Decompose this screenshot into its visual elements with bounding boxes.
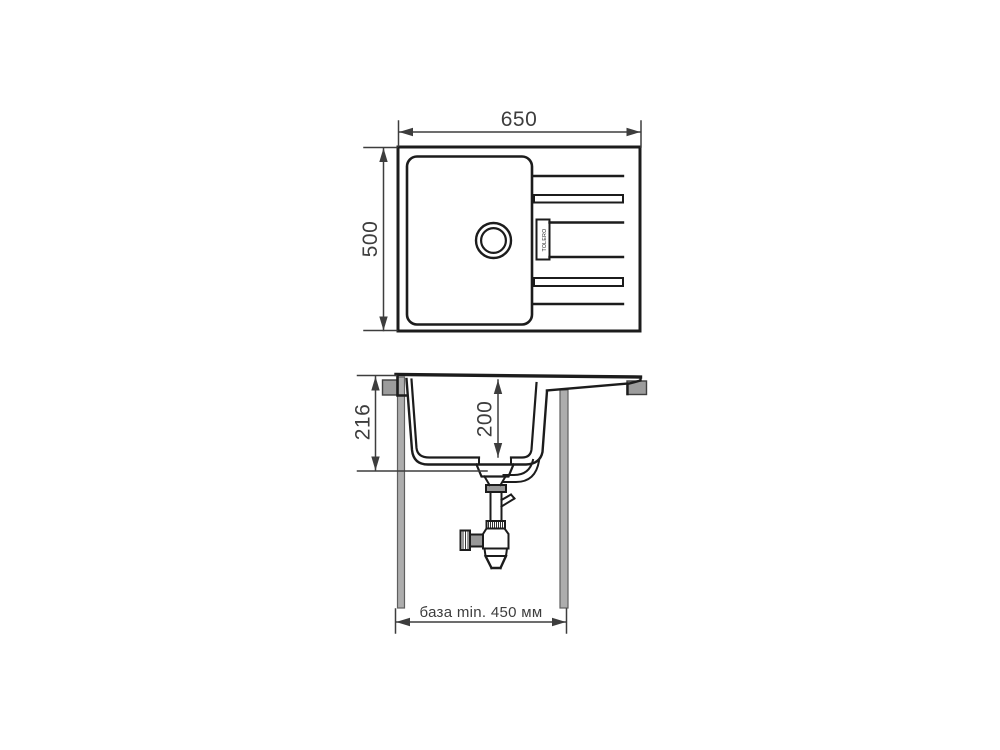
trap-side-outlet — [461, 531, 484, 551]
sink-dimension-drawing: TOLERO 650 500 — [0, 0, 1000, 750]
dim-label-bowl-depth: 200 — [474, 401, 497, 438]
arrow-up-icon — [371, 377, 379, 391]
arrow-up-icon — [494, 380, 502, 394]
arrow-down-icon — [379, 317, 387, 331]
drain-hole-inner — [481, 228, 506, 253]
cabinet-right-panel — [560, 390, 568, 608]
siphon-assembly — [461, 460, 540, 568]
top-view: TOLERO 650 500 — [359, 108, 641, 331]
arrow-down-icon — [494, 443, 502, 457]
dim-label-height: 500 — [359, 221, 382, 258]
side-view: 216 200 база min. 450 мм — [352, 375, 647, 634]
drain-funnel — [485, 477, 506, 486]
threaded-collar-bottom — [487, 521, 506, 529]
arrow-up-icon — [379, 148, 387, 162]
arrow-left-icon — [396, 618, 410, 626]
drainboard-groove-1 — [534, 195, 623, 203]
branch-nozzle — [502, 495, 515, 507]
drainboard-underside — [547, 384, 628, 391]
sink-bowl-outline — [407, 157, 532, 325]
cabinet-left-panel — [398, 377, 405, 608]
arrow-right-icon — [552, 618, 566, 626]
dim-label-width: 650 — [501, 108, 538, 131]
arrow-right-icon — [627, 128, 641, 136]
dimension-base-450: база min. 450 мм — [396, 604, 567, 633]
sink-cross-section — [396, 375, 641, 465]
arrow-down-icon — [371, 457, 379, 471]
dimension-200: 200 — [474, 380, 503, 457]
technical-drawing-canvas: TOLERO 650 500 — [0, 0, 1000, 750]
dimension-650: 650 — [399, 108, 642, 147]
rim-top-surface — [396, 375, 641, 378]
trap-cup — [483, 549, 509, 569]
dim-label-total-depth: 216 — [352, 404, 375, 441]
trap-body — [483, 529, 509, 549]
arrow-left-icon — [399, 128, 413, 136]
brand-label: TOLERO — [542, 228, 548, 251]
siphon-pipe — [491, 492, 502, 521]
dimension-500: 500 — [359, 148, 397, 331]
drainboard-groove-2 — [534, 278, 623, 286]
dim-label-base: база min. 450 мм — [420, 604, 543, 621]
